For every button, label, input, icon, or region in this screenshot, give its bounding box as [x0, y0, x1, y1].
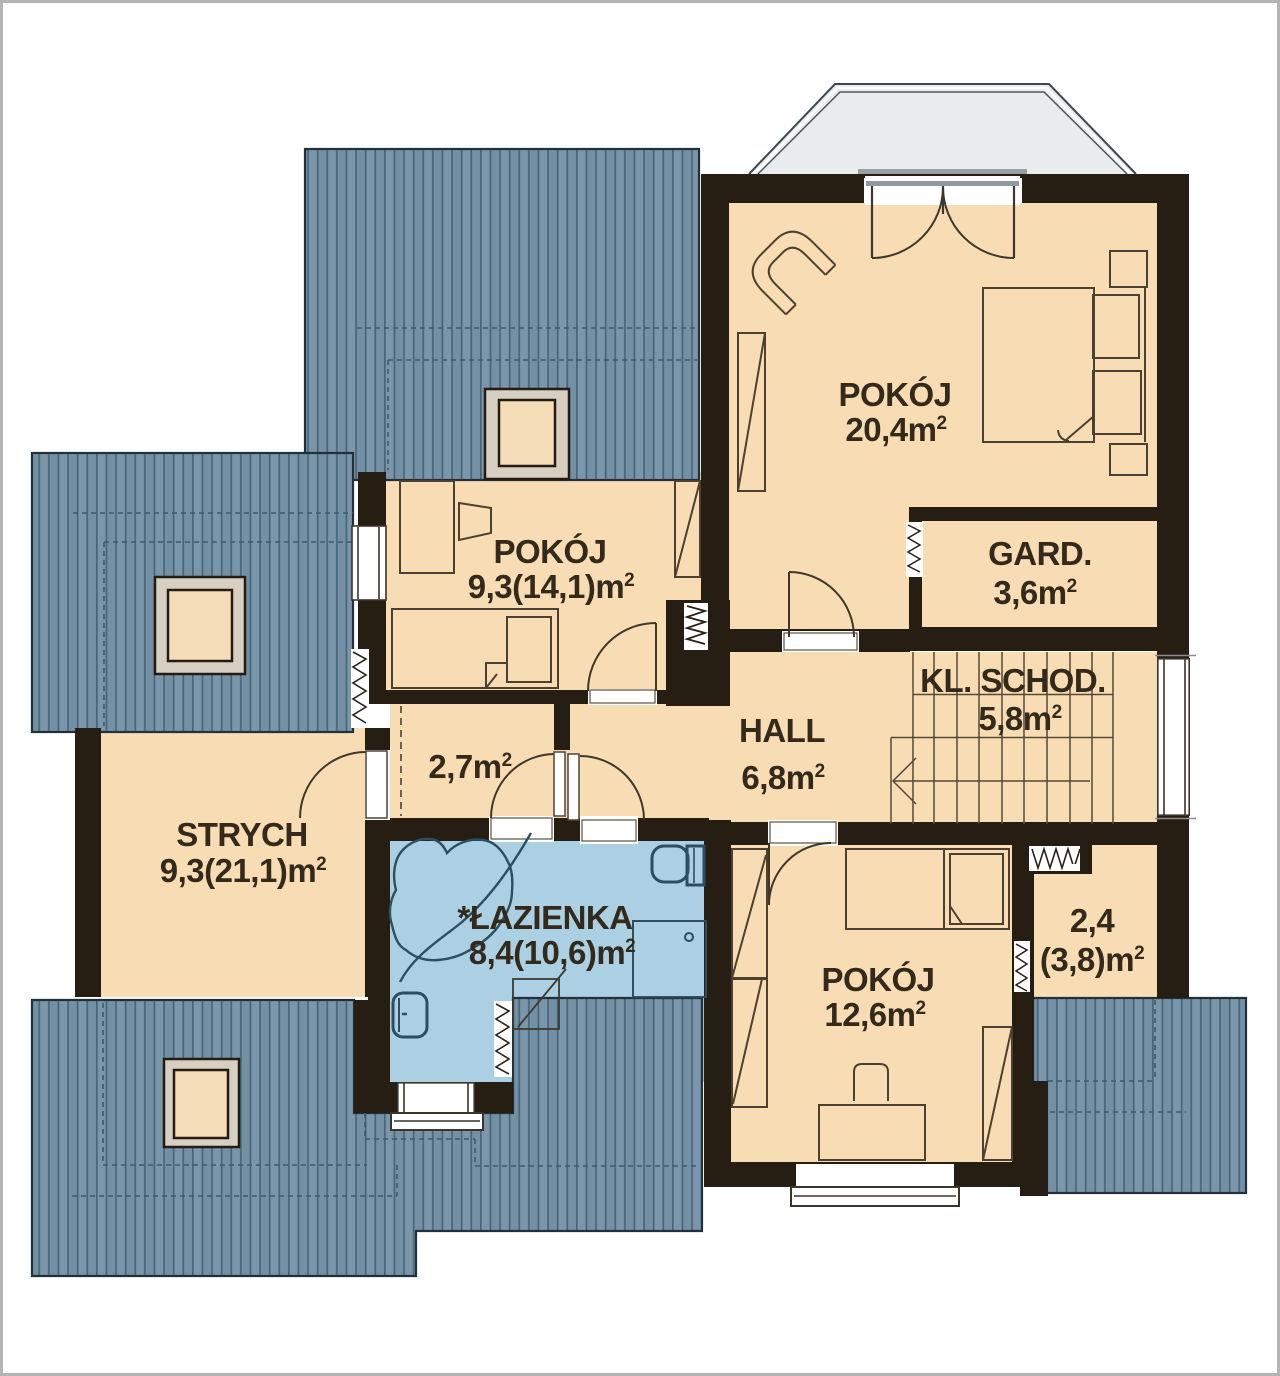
- svg-text:9,3(14,1)m2: 9,3(14,1)m2: [468, 568, 635, 605]
- svg-text:3,6m2: 3,6m2: [993, 574, 1076, 611]
- svg-text:12,6m2: 12,6m2: [824, 996, 925, 1033]
- svg-text:2,7m2: 2,7m2: [428, 748, 511, 785]
- svg-text:9,3(21,1)m2: 9,3(21,1)m2: [160, 852, 327, 889]
- svg-text:HALL: HALL: [739, 712, 825, 749]
- svg-text:(3,8)m2: (3,8)m2: [1040, 941, 1144, 978]
- svg-text:POKÓJ: POKÓJ: [821, 961, 934, 998]
- svg-text:6,8m2: 6,8m2: [741, 759, 824, 796]
- svg-text:*ŁAZIENKA: *ŁAZIENKA: [457, 899, 632, 936]
- svg-text:STRYCH: STRYCH: [176, 816, 307, 853]
- svg-text:5,8m2: 5,8m2: [978, 700, 1061, 737]
- svg-text:8,4(10,6)m2: 8,4(10,6)m2: [469, 934, 636, 971]
- svg-text:GARD.: GARD.: [988, 535, 1092, 572]
- svg-text:KL. SCHOD.: KL. SCHOD.: [920, 662, 1106, 699]
- svg-text:POKÓJ: POKÓJ: [838, 376, 951, 413]
- svg-text:2,4: 2,4: [1070, 902, 1116, 939]
- svg-text:20,4m2: 20,4m2: [845, 411, 946, 448]
- svg-text:POKÓJ: POKÓJ: [493, 533, 606, 570]
